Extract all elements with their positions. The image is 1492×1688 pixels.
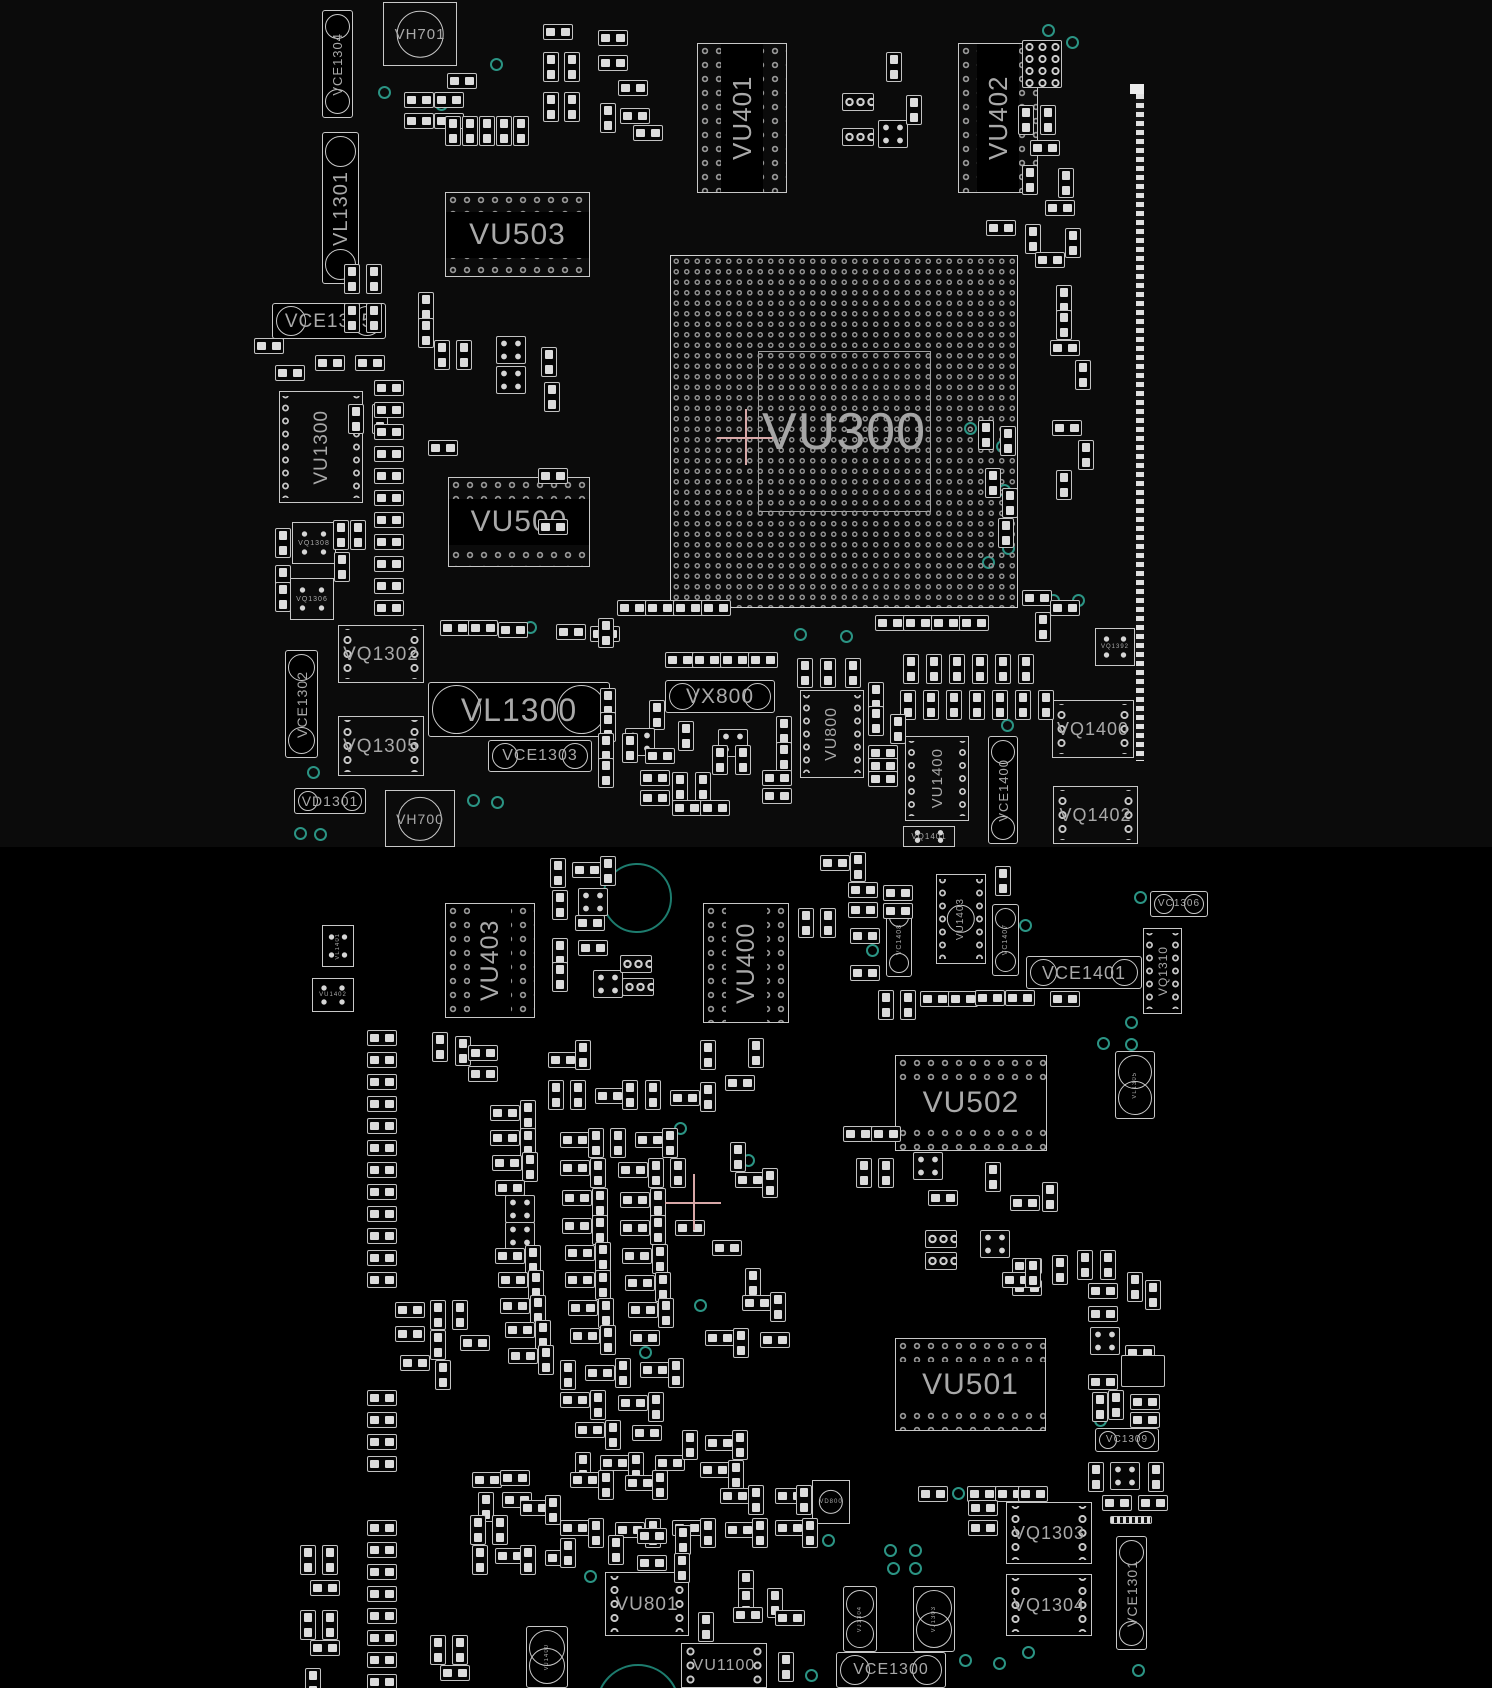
chip-pad[interactable]: [850, 928, 880, 944]
component-VL1301[interactable]: VL1301: [322, 132, 359, 284]
component-VCE1301[interactable]: VCE1301: [1116, 1536, 1147, 1650]
chip-pad[interactable]: [856, 1158, 872, 1188]
transistor-pad[interactable]: [496, 336, 526, 364]
chip-pad[interactable]: [565, 1245, 595, 1261]
chip-pad[interactable]: [543, 24, 573, 40]
chip-pad[interactable]: [538, 468, 568, 484]
chip-pad[interactable]: [871, 1126, 901, 1142]
chip-pad[interactable]: [605, 1420, 621, 1450]
transistor-pad[interactable]: [578, 888, 608, 916]
chip-pad[interactable]: [522, 1152, 538, 1182]
chip-pad[interactable]: [367, 1118, 397, 1134]
chip-pad[interactable]: [595, 1270, 611, 1300]
chip-pad[interactable]: [468, 1045, 498, 1061]
chip-pad[interactable]: [890, 714, 906, 744]
component-VCE1302[interactable]: VCE1302: [285, 650, 318, 758]
chip-pad[interactable]: [498, 622, 528, 638]
chip-pad[interactable]: [418, 318, 434, 348]
chip-pad[interactable]: [545, 1495, 561, 1525]
chip-pad[interactable]: [367, 1074, 397, 1090]
chip-pad[interactable]: [622, 733, 638, 763]
chip-pad[interactable]: [968, 1520, 998, 1536]
chip-pad[interactable]: [344, 264, 360, 294]
chip-pad[interactable]: [500, 1298, 530, 1314]
chip-pad[interactable]: [366, 264, 382, 294]
chip-pad[interactable]: [367, 1674, 397, 1688]
chip-pad[interactable]: [665, 652, 695, 668]
chip-pad[interactable]: [310, 1640, 340, 1656]
chip-pad[interactable]: [1058, 168, 1074, 198]
chip-pad[interactable]: [949, 654, 965, 684]
chip-pad[interactable]: [560, 1520, 590, 1536]
chip-pad[interactable]: [730, 1142, 746, 1172]
chip-pad[interactable]: [490, 1130, 520, 1146]
chip-pad[interactable]: [1148, 1462, 1164, 1492]
chip-pad[interactable]: [1050, 991, 1080, 1007]
chip-pad[interactable]: [875, 615, 905, 631]
pad-array[interactable]: [1022, 40, 1062, 88]
chip-pad[interactable]: [374, 402, 404, 418]
chip-pad[interactable]: [992, 690, 1008, 720]
chip-pad[interactable]: [760, 1332, 790, 1348]
component-VCE1400[interactable]: VCE1400: [988, 736, 1018, 844]
chip-pad[interactable]: [520, 1100, 536, 1130]
chip-pad[interactable]: [762, 770, 792, 786]
chip-pad[interactable]: [447, 73, 477, 89]
chip-pad[interactable]: [1145, 1280, 1161, 1310]
chip-pad[interactable]: [1092, 1392, 1108, 1422]
chip-pad[interactable]: [620, 108, 650, 124]
chip-pad[interactable]: [692, 652, 722, 668]
component-VU501[interactable]: VU501: [895, 1338, 1046, 1431]
chip-pad[interactable]: [732, 1430, 748, 1460]
chip-pad[interactable]: [305, 1668, 321, 1688]
component-VU400[interactable]: VU400: [703, 903, 789, 1023]
chip-pad[interactable]: [367, 1434, 397, 1450]
chip-pad[interactable]: [848, 902, 878, 918]
chip-pad[interactable]: [600, 856, 616, 886]
chip-pad[interactable]: [695, 772, 711, 802]
chip-pad[interactable]: [1025, 224, 1041, 254]
capacitor-pad[interactable]: [620, 955, 652, 973]
chip-pad[interactable]: [572, 862, 602, 878]
chip-pad[interactable]: [959, 615, 989, 631]
chip-pad[interactable]: [635, 1132, 665, 1148]
chip-pad[interactable]: [649, 700, 665, 730]
chip-pad[interactable]: [367, 1542, 397, 1558]
chip-pad[interactable]: [404, 113, 434, 129]
chip-pad[interactable]: [564, 52, 580, 82]
chip-pad[interactable]: [590, 1390, 606, 1420]
chip-pad[interactable]: [712, 1240, 742, 1256]
chip-pad[interactable]: [1035, 252, 1065, 268]
chip-pad[interactable]: [595, 1242, 611, 1272]
chip-pad[interactable]: [650, 1215, 666, 1245]
chip-pad[interactable]: [300, 1545, 316, 1575]
chip-pad[interactable]: [1100, 1250, 1116, 1280]
component-VU1403[interactable]: VU1403: [936, 874, 986, 964]
chip-pad[interactable]: [541, 347, 557, 377]
chip-pad[interactable]: [1042, 1182, 1058, 1212]
component-VQ1400[interactable]: VQ1400: [1052, 700, 1134, 758]
chip-pad[interactable]: [600, 1325, 616, 1355]
chip-pad[interactable]: [928, 1190, 958, 1206]
chip-pad[interactable]: [622, 1248, 652, 1264]
chip-pad[interactable]: [995, 654, 1011, 684]
component-VCE1401[interactable]: VCE1401: [1026, 956, 1142, 989]
component-VX800[interactable]: VX800: [665, 680, 775, 713]
chip-pad[interactable]: [435, 1360, 451, 1390]
chip-pad[interactable]: [652, 1244, 668, 1274]
chip-pad[interactable]: [367, 1390, 397, 1406]
chip-pad[interactable]: [430, 1330, 446, 1360]
chip-pad[interactable]: [1035, 612, 1051, 642]
chip-pad[interactable]: [565, 1272, 595, 1288]
chip-pad[interactable]: [367, 1206, 397, 1222]
chip-pad[interactable]: [570, 1080, 586, 1110]
chip-pad[interactable]: [883, 903, 913, 919]
chip-pad[interactable]: [1040, 105, 1056, 135]
chip-pad[interactable]: [367, 1052, 397, 1068]
chip-pad[interactable]: [920, 991, 950, 1007]
chip-pad[interactable]: [725, 1522, 755, 1538]
chip-pad[interactable]: [1018, 105, 1034, 135]
chip-pad[interactable]: [850, 852, 866, 882]
transistor-pad[interactable]: [1110, 1462, 1140, 1490]
chip-pad[interactable]: [972, 654, 988, 684]
chip-pad[interactable]: [367, 1228, 397, 1244]
chip-pad[interactable]: [548, 1080, 564, 1110]
chip-pad[interactable]: [650, 1188, 666, 1218]
component-VU503[interactable]: VU503: [445, 192, 590, 277]
component-VJ1303[interactable]: VJ1303: [913, 1586, 955, 1652]
chip-pad[interactable]: [350, 520, 366, 550]
chip-pad[interactable]: [430, 1635, 446, 1665]
chip-pad[interactable]: [622, 1080, 638, 1110]
component-VC1309[interactable]: VC1309: [1095, 1428, 1159, 1452]
chip-pad[interactable]: [868, 771, 898, 787]
chip-pad[interactable]: [367, 1652, 397, 1668]
chip-pad[interactable]: [672, 772, 688, 802]
chip-pad[interactable]: [675, 1525, 691, 1555]
chip-pad[interactable]: [568, 1300, 598, 1316]
chip-pad[interactable]: [1065, 228, 1081, 258]
chip-pad[interactable]: [505, 1322, 535, 1338]
chip-pad[interactable]: [367, 1456, 397, 1472]
chip-pad[interactable]: [598, 758, 614, 788]
chip-pad[interactable]: [395, 1326, 425, 1342]
chip-pad[interactable]: [367, 1272, 397, 1288]
chip-pad[interactable]: [886, 52, 902, 82]
chip-pad[interactable]: [495, 1248, 525, 1264]
chip-pad[interactable]: [479, 116, 495, 146]
chip-pad[interactable]: [564, 92, 580, 122]
chip-pad[interactable]: [1052, 1255, 1068, 1285]
chip-pad[interactable]: [1088, 1374, 1118, 1390]
chip-pad[interactable]: [720, 1488, 750, 1504]
chip-pad[interactable]: [1088, 1462, 1104, 1492]
chip-pad[interactable]: [1077, 1250, 1093, 1280]
chip-pad[interactable]: [440, 1665, 470, 1681]
component-VC1407[interactable]: VC1407: [992, 904, 1019, 976]
chip-pad[interactable]: [883, 885, 913, 901]
component-VQ1303[interactable]: VQ1303: [1006, 1502, 1092, 1564]
transistor-pad[interactable]: [496, 366, 526, 394]
component-VD1301[interactable]: VD1301: [294, 788, 366, 814]
component-VU502[interactable]: VU502: [895, 1055, 1047, 1151]
chip-pad[interactable]: [315, 355, 345, 371]
component-VL1300[interactable]: VL1300: [428, 682, 610, 737]
chip-pad[interactable]: [513, 116, 529, 146]
chip-pad[interactable]: [752, 1518, 768, 1548]
chip-pad[interactable]: [445, 116, 461, 146]
chip-pad[interactable]: [778, 1652, 794, 1682]
chip-pad[interactable]: [456, 340, 472, 370]
chip-pad[interactable]: [367, 1162, 397, 1178]
chip-pad[interactable]: [1088, 1283, 1118, 1299]
chip-pad[interactable]: [948, 991, 978, 1007]
chip-pad[interactable]: [705, 1330, 735, 1346]
component-VQ1302[interactable]: VQ1302: [338, 625, 424, 683]
chip-pad[interactable]: [1130, 1412, 1160, 1428]
capacitor-pad[interactable]: [925, 1252, 957, 1270]
chip-pad[interactable]: [374, 578, 404, 594]
chip-pad[interactable]: [848, 882, 878, 898]
chip-pad[interactable]: [552, 962, 568, 992]
chip-pad[interactable]: [1127, 1272, 1143, 1302]
chip-pad[interactable]: [366, 303, 382, 333]
component-VJ1304[interactable]: VJ1304: [843, 1586, 877, 1652]
chip-pad[interactable]: [705, 1435, 735, 1451]
chip-pad[interactable]: [1138, 1495, 1168, 1511]
chip-pad[interactable]: [550, 858, 566, 888]
chip-pad[interactable]: [560, 1360, 576, 1390]
chip-pad[interactable]: [625, 1475, 655, 1491]
chip-pad[interactable]: [374, 446, 404, 462]
chip-pad[interactable]: [333, 520, 349, 550]
chip-pad[interactable]: [618, 1162, 648, 1178]
chip-pad[interactable]: [995, 866, 1011, 896]
chip-pad[interactable]: [254, 338, 284, 354]
chip-pad[interactable]: [1045, 200, 1075, 216]
chip-pad[interactable]: [748, 1485, 764, 1515]
chip-pad[interactable]: [1005, 990, 1035, 1006]
chip-pad[interactable]: [906, 95, 922, 125]
component-VJ1400[interactable]: VJ1400: [526, 1626, 568, 1688]
component-VCE1304[interactable]: VCE1304: [322, 10, 353, 118]
chip-pad[interactable]: [575, 1040, 591, 1070]
chip-pad[interactable]: [434, 340, 450, 370]
transistor-pad[interactable]: [593, 970, 623, 998]
chip-pad[interactable]: [492, 1515, 508, 1545]
chip-pad[interactable]: [742, 1295, 772, 1311]
chip-pad[interactable]: [748, 652, 778, 668]
chip-pad[interactable]: [969, 690, 985, 720]
chip-pad[interactable]: [645, 748, 675, 764]
chip-pad[interactable]: [931, 615, 961, 631]
chip-pad[interactable]: [762, 788, 792, 804]
chip-pad[interactable]: [440, 620, 470, 636]
chip-pad[interactable]: [762, 1168, 778, 1198]
chip-pad[interactable]: [610, 1128, 626, 1158]
chip-pad[interactable]: [374, 468, 404, 484]
capacitor-pad[interactable]: [842, 93, 874, 111]
chip-pad[interactable]: [618, 80, 648, 96]
component-VCE1300[interactable]: VCE1300: [836, 1652, 946, 1688]
capacitor-pad[interactable]: [925, 1230, 957, 1248]
chip-pad[interactable]: [701, 600, 731, 616]
chip-pad[interactable]: [733, 1607, 763, 1623]
chip-pad[interactable]: [700, 800, 730, 816]
chip-pad[interactable]: [496, 116, 512, 146]
chip-pad[interactable]: [946, 690, 962, 720]
chip-pad[interactable]: [978, 420, 994, 450]
chip-pad[interactable]: [620, 1220, 650, 1236]
chip-pad[interactable]: [662, 1128, 678, 1158]
component-VH700[interactable]: VH700: [385, 790, 455, 847]
chip-pad[interactable]: [700, 1518, 716, 1548]
chip-pad[interactable]: [733, 1328, 749, 1358]
chip-pad[interactable]: [776, 742, 792, 772]
chip-pad[interactable]: [334, 552, 350, 582]
component-VQ1306[interactable]: VQ1306: [290, 578, 334, 620]
chip-pad[interactable]: [923, 690, 939, 720]
chip-pad[interactable]: [592, 1215, 608, 1245]
chip-pad[interactable]: [975, 990, 1005, 1006]
chip-pad[interactable]: [600, 103, 616, 133]
chip-pad[interactable]: [322, 1610, 338, 1640]
chip-pad[interactable]: [367, 1184, 397, 1200]
chip-pad[interactable]: [900, 990, 916, 1020]
chip-pad[interactable]: [998, 518, 1014, 548]
chip-pad[interactable]: [673, 600, 703, 616]
chip-pad[interactable]: [585, 1365, 615, 1381]
chip-pad[interactable]: [986, 220, 1016, 236]
chip-pad[interactable]: [367, 1564, 397, 1580]
chip-pad[interactable]: [1108, 1390, 1124, 1420]
chip-pad[interactable]: [770, 1292, 786, 1322]
chip-pad[interactable]: [1022, 165, 1038, 195]
chip-pad[interactable]: [578, 940, 608, 956]
transistor-pad[interactable]: [913, 1152, 943, 1180]
chip-pad[interactable]: [468, 620, 498, 636]
chip-pad[interactable]: [843, 1126, 873, 1142]
chip-pad[interactable]: [618, 1395, 648, 1411]
chip-pad[interactable]: [617, 600, 647, 616]
chip-pad[interactable]: [1018, 654, 1034, 684]
chip-pad[interactable]: [552, 890, 568, 920]
chip-pad[interactable]: [452, 1300, 468, 1330]
chip-pad[interactable]: [903, 615, 933, 631]
chip-pad[interactable]: [868, 706, 884, 736]
chip-pad[interactable]: [588, 1518, 604, 1548]
chip-pad[interactable]: [652, 1470, 668, 1500]
chip-pad[interactable]: [275, 582, 291, 612]
chip-pad[interactable]: [548, 1052, 578, 1068]
chip-pad[interactable]: [700, 1082, 716, 1112]
capacitor-pad[interactable]: [842, 128, 874, 146]
chip-pad[interactable]: [374, 512, 404, 528]
chip-pad[interactable]: [640, 790, 670, 806]
chip-pad[interactable]: [367, 1412, 397, 1428]
chip-pad[interactable]: [1088, 1306, 1118, 1322]
chip-pad[interactable]: [374, 534, 404, 550]
chip-pad[interactable]: [452, 1635, 468, 1665]
chip-pad[interactable]: [367, 1520, 397, 1536]
chip-pad[interactable]: [367, 1096, 397, 1112]
chip-pad[interactable]: [468, 1066, 498, 1082]
chip-pad[interactable]: [1130, 1394, 1160, 1410]
chip-pad[interactable]: [570, 1472, 600, 1488]
chip-pad[interactable]: [796, 1485, 812, 1515]
chip-pad[interactable]: [698, 1612, 714, 1642]
component-VQ1310[interactable]: VQ1310: [1143, 928, 1182, 1014]
chip-pad[interactable]: [775, 1520, 805, 1536]
chip-pad[interactable]: [404, 92, 434, 108]
chip-pad[interactable]: [797, 658, 813, 688]
chip-pad[interactable]: [637, 1555, 667, 1571]
component-VQ1304[interactable]: VQ1304: [1006, 1574, 1092, 1636]
chip-pad[interactable]: [845, 658, 861, 688]
chip-pad[interactable]: [348, 404, 364, 434]
chip-pad[interactable]: [670, 1090, 700, 1106]
chip-pad[interactable]: [472, 1545, 488, 1575]
chip-pad[interactable]: [1010, 1195, 1040, 1211]
chip-pad[interactable]: [645, 1080, 661, 1110]
chip-pad[interactable]: [570, 1328, 600, 1344]
chip-pad[interactable]: [615, 1358, 631, 1388]
chip-pad[interactable]: [275, 365, 305, 381]
chip-pad[interactable]: [600, 1455, 630, 1471]
transistor-pad[interactable]: [878, 120, 908, 148]
chip-pad[interactable]: [735, 745, 751, 775]
chip-pad[interactable]: [544, 382, 560, 412]
capacitor-pad[interactable]: [622, 978, 654, 996]
chip-pad[interactable]: [745, 1268, 761, 1298]
chip-pad[interactable]: [720, 652, 750, 668]
component-VU1400[interactable]: VU1400: [905, 736, 969, 821]
component-VH701[interactable]: VH701: [383, 2, 457, 66]
chip-pad[interactable]: [500, 1470, 530, 1486]
chip-pad[interactable]: [725, 1075, 755, 1091]
component-VQ1402[interactable]: VQ1402: [1053, 786, 1138, 844]
chip-pad[interactable]: [1025, 1258, 1041, 1288]
chip-pad[interactable]: [538, 1345, 554, 1375]
chip-pad[interactable]: [592, 1188, 608, 1218]
component-VQ1392[interactable]: VQ1392: [1095, 628, 1135, 666]
chip-pad[interactable]: [632, 1425, 662, 1441]
chip-pad[interactable]: [344, 303, 360, 333]
chip-pad[interactable]: [575, 1422, 605, 1438]
chip-pad[interactable]: [374, 556, 404, 572]
transistor-pad[interactable]: [980, 1230, 1010, 1258]
chip-pad[interactable]: [355, 355, 385, 371]
component-VC1306[interactable]: VC1306: [1150, 891, 1208, 917]
chip-pad[interactable]: [712, 745, 728, 775]
chip-pad[interactable]: [645, 600, 675, 616]
chip-pad[interactable]: [560, 1160, 590, 1176]
chip-pad[interactable]: [775, 1610, 805, 1626]
chip-pad[interactable]: [1050, 340, 1080, 356]
chip-pad[interactable]: [460, 1335, 490, 1351]
chip-pad[interactable]: [985, 1162, 1001, 1192]
chip-pad[interactable]: [367, 1586, 397, 1602]
chip-pad[interactable]: [562, 1190, 592, 1206]
chip-pad[interactable]: [520, 1545, 536, 1575]
chip-pad[interactable]: [658, 1298, 674, 1328]
chip-pad[interactable]: [918, 1486, 948, 1502]
chip-pad[interactable]: [628, 1302, 658, 1318]
